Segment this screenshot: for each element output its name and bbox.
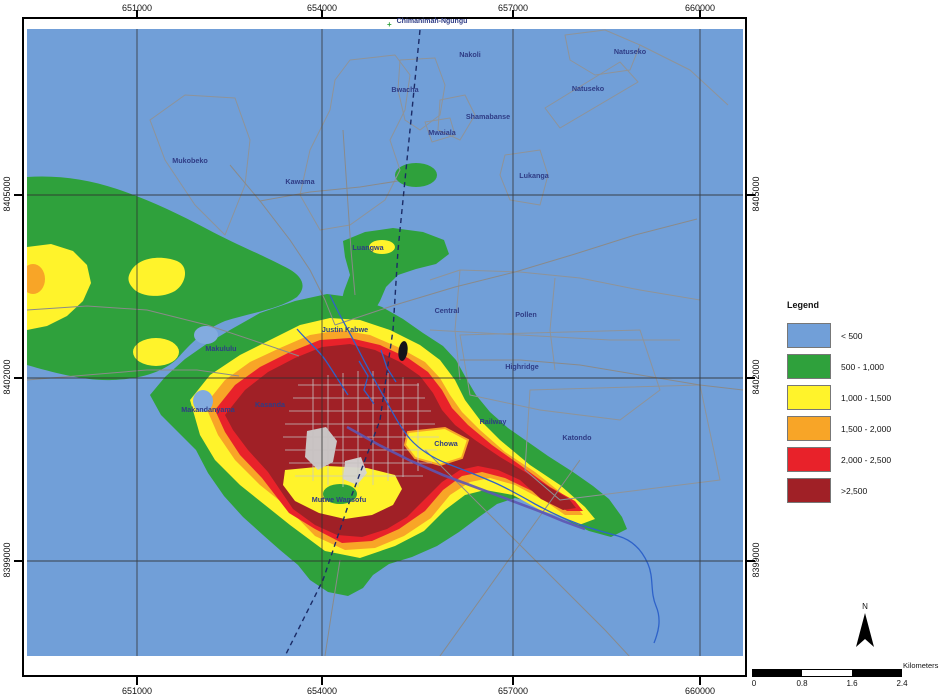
axis-tick: [699, 10, 701, 18]
legend: Legend < 500 500 - 1,000 1,000 - 1,500 1…: [787, 300, 945, 509]
scale-bar: Kilometers 0 0.8 1.6 2.4: [752, 661, 946, 695]
axis-label-bottom-1: 654000: [307, 686, 337, 696]
legend-label: >2,500: [841, 486, 867, 496]
legend-label: < 500: [841, 331, 863, 341]
axis-tick: [321, 677, 323, 685]
green-cross-marker: +: [387, 20, 392, 29]
map-place-label: Kawama: [285, 177, 315, 186]
map-place-label: Luangwa: [352, 243, 384, 252]
legend-label: 500 - 1,000: [841, 362, 884, 372]
legend-row: >2,500: [787, 478, 945, 503]
map-place-label: Kasanda: [255, 400, 286, 409]
legend-swatch-gt2500: [787, 478, 831, 503]
legend-label: 2,000 - 2,500: [841, 455, 891, 465]
axis-label-bottom-0: 651000: [122, 686, 152, 696]
map-place-label: Pollen: [515, 310, 537, 319]
map-place-label: Highridge: [505, 362, 539, 371]
map-place-label: Bwacha: [391, 85, 419, 94]
legend-title: Legend: [787, 300, 945, 310]
map-canvas[interactable]: NakoliNatusekoBwachaNatusekoShamabanseMw…: [27, 29, 743, 656]
scale-bar-tick-label: 0: [752, 679, 756, 688]
axis-tick: [747, 194, 755, 196]
map-place-label: Mwaiala: [428, 128, 457, 137]
map-place-label: Makandanyama: [181, 405, 236, 414]
legend-swatch-2000-2500: [787, 447, 831, 472]
map-place-label: Justin Kabwe: [322, 325, 368, 334]
map-place-label: Mukobeko: [172, 156, 208, 165]
scale-bar-segment: [753, 670, 802, 676]
axis-tick: [14, 560, 22, 562]
map-place-label: Shamabanse: [466, 112, 510, 121]
axis-tick: [747, 560, 755, 562]
north-arrow-label: N: [850, 602, 880, 611]
map-place-label: Makululu: [205, 344, 236, 353]
map-place-label: Nakoli: [459, 50, 481, 59]
place-label-chimanimah-ngungu: Chimanimah-Ngungu: [397, 18, 468, 25]
axis-label-left-2: 8399000: [2, 530, 12, 590]
legend-swatch-lt500: [787, 323, 831, 348]
map-place-label: Railway: [480, 417, 507, 426]
map-place-label: Lukanga: [519, 171, 550, 180]
map-place-label: Chowa: [434, 439, 459, 448]
legend-label: 1,500 - 2,000: [841, 424, 891, 434]
scale-bar-unit: Kilometers: [903, 661, 938, 670]
map-document: NakoliNatusekoBwachaNatusekoShamabanseMw…: [0, 0, 946, 699]
map-place-label: Katondo: [562, 433, 592, 442]
legend-swatch-1000-1500: [787, 385, 831, 410]
legend-label: 1,000 - 1,500: [841, 393, 891, 403]
scale-bar-tick-label: 2.4: [896, 679, 907, 688]
legend-row: < 500: [787, 323, 945, 348]
axis-tick: [747, 377, 755, 379]
map-place-label: Natuseko: [572, 84, 605, 93]
axis-label-left-0: 8405000: [2, 164, 12, 224]
axis-tick: [699, 677, 701, 685]
axis-label-left-1: 8402000: [2, 347, 12, 407]
map-place-label: Central: [435, 306, 460, 315]
axis-tick: [321, 10, 323, 18]
axis-tick: [512, 677, 514, 685]
axis-tick: [136, 10, 138, 18]
legend-swatch-500-1000: [787, 354, 831, 379]
scale-bar-tick-label: 0.8: [796, 679, 807, 688]
axis-label-bottom-3: 660000: [685, 686, 715, 696]
legend-swatch-1500-2000: [787, 416, 831, 441]
map-place-label: Mutwe Wansofu: [312, 495, 366, 504]
scale-bar-tick-label: 1.6: [846, 679, 857, 688]
scale-bar-segment: [852, 670, 901, 676]
scale-bar-segment: [802, 670, 851, 676]
north-arrow-icon: [850, 611, 880, 651]
axis-label-bottom-2: 657000: [498, 686, 528, 696]
legend-row: 1,000 - 1,500: [787, 385, 945, 410]
north-arrow: N: [850, 602, 880, 656]
scale-bar-segments: [752, 669, 902, 677]
legend-row: 2,000 - 2,500: [787, 447, 945, 472]
legend-row: 1,500 - 2,000: [787, 416, 945, 441]
axis-tick: [14, 194, 22, 196]
map-place-label: Natuseko: [614, 47, 647, 56]
axis-tick: [512, 10, 514, 18]
axis-tick: [14, 377, 22, 379]
axis-tick: [136, 677, 138, 685]
legend-row: 500 - 1,000: [787, 354, 945, 379]
